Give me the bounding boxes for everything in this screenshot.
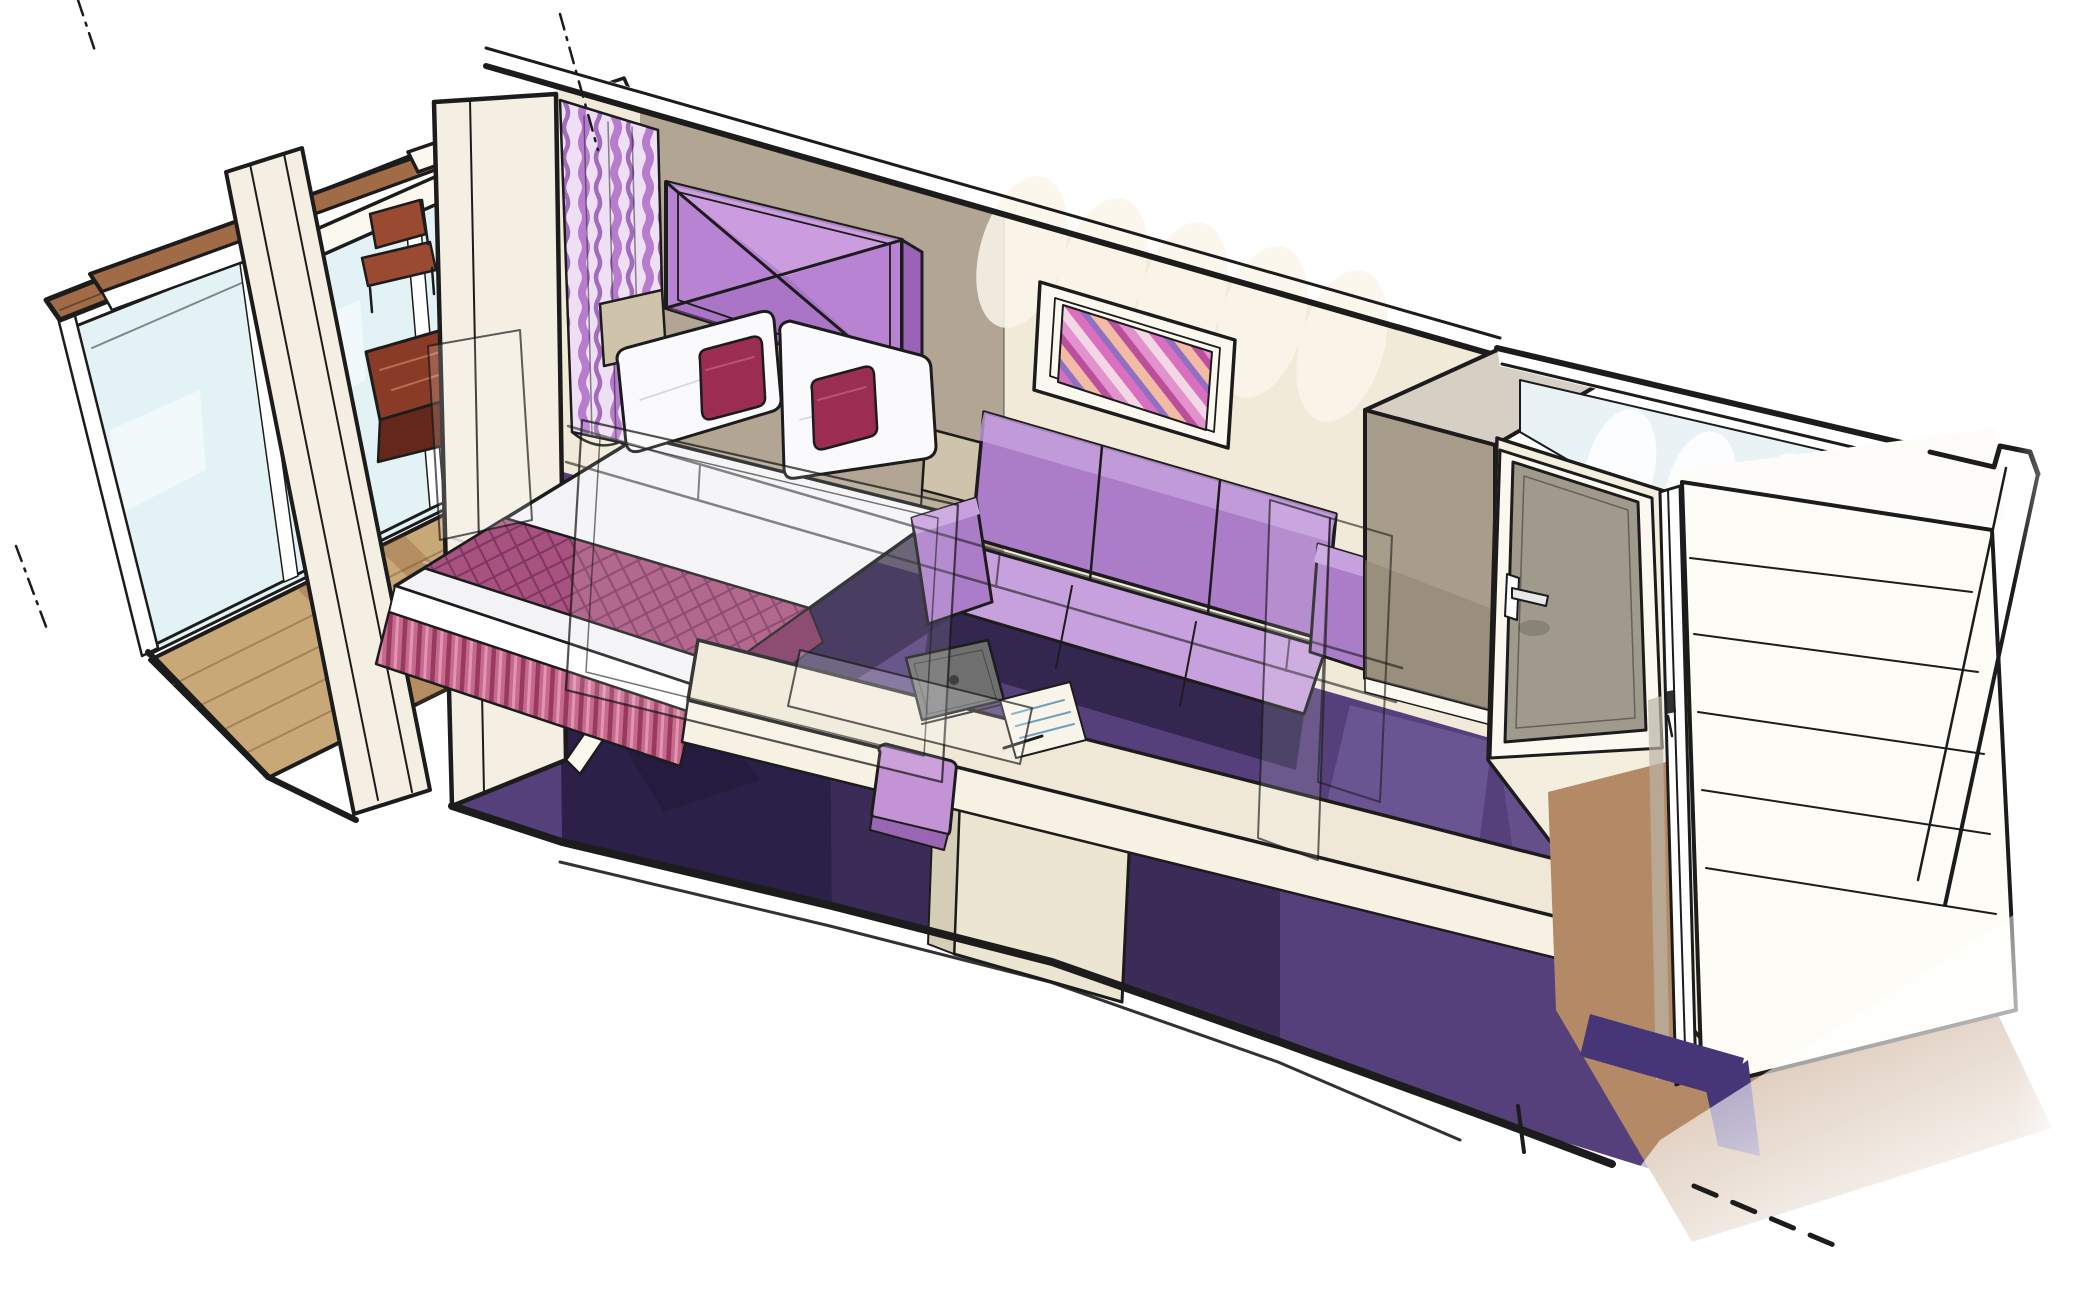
illustration-canvas xyxy=(0,0,2100,1299)
accent-cushion-left xyxy=(700,337,765,420)
leader-line-left xyxy=(16,546,48,632)
tablet-logo xyxy=(949,675,959,685)
ghost-frame-right xyxy=(1258,500,1330,860)
accent-cushion-right xyxy=(812,367,877,450)
ghost-frame-balcony xyxy=(428,330,532,540)
leader-line-top-left xyxy=(78,0,96,54)
side-wall-cut-edge xyxy=(268,777,356,820)
handle-shadow xyxy=(1518,620,1550,636)
cabin-cutaway-illustration xyxy=(0,0,2100,1299)
door-latch xyxy=(1664,690,1676,714)
